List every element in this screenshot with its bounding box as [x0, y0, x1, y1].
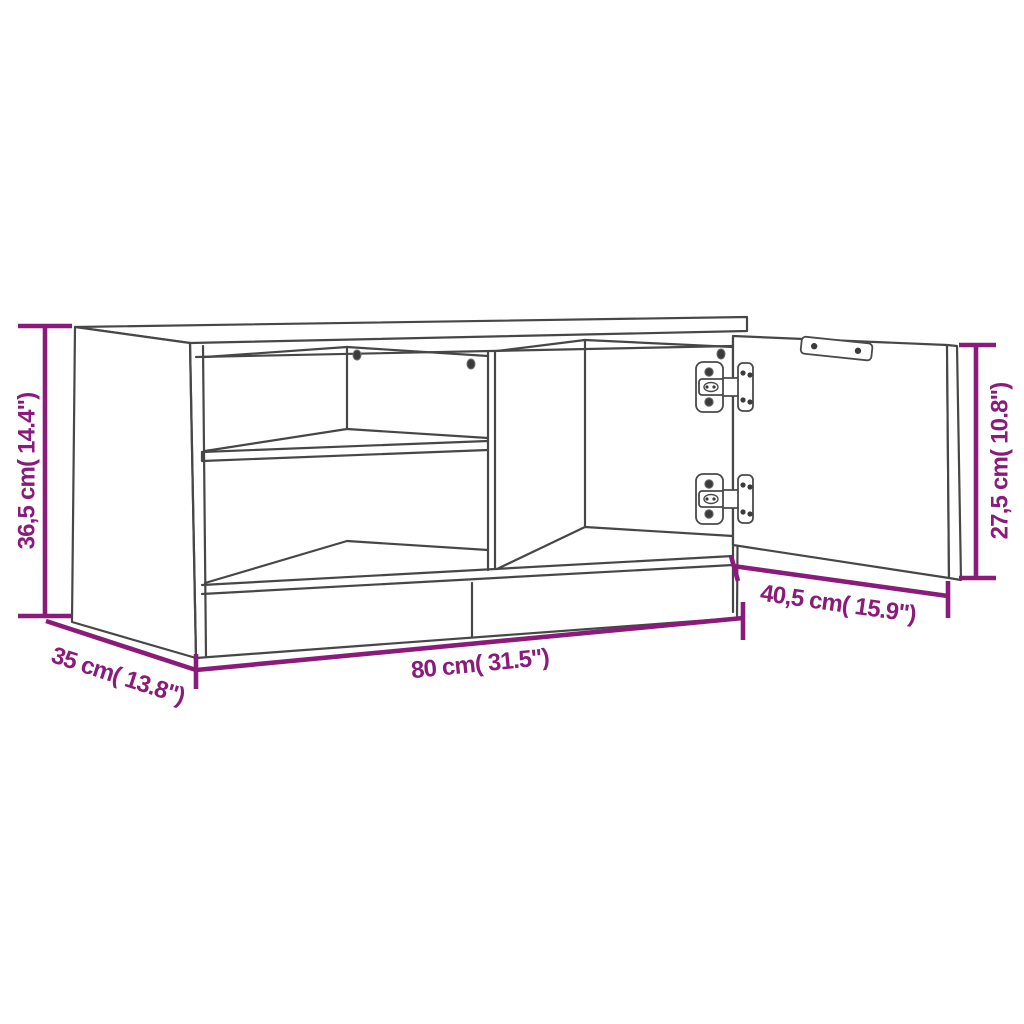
- cabinet-outline: [72, 317, 747, 658]
- furniture-dimension-diagram: 36,5 cm( 14.4") 35 cm( 13.8") 80 cm( 31.…: [0, 0, 1024, 1024]
- door-inner-face: [733, 336, 949, 578]
- left-side-panel: [72, 327, 196, 658]
- left-compartment: [202, 347, 488, 583]
- top-panel: [75, 317, 747, 343]
- hinge-icon: [696, 474, 753, 524]
- hinge-icon: [696, 362, 753, 412]
- screw-icon: [353, 350, 361, 360]
- middle-shelf: [202, 429, 488, 461]
- front-frame: [190, 339, 739, 658]
- diagram-canvas: 36,5 cm( 14.4") 35 cm( 13.8") 80 cm( 31.…: [0, 0, 1024, 1024]
- screw-icon: [467, 359, 475, 369]
- center-divider: [488, 351, 495, 570]
- door-height-dimension-label: 27,5 cm( 10.8"): [987, 383, 1014, 540]
- screw-icon: [717, 349, 725, 359]
- depth-dimension-label: 35 cm( 13.8"): [48, 642, 188, 710]
- door-edge-thickness: [947, 345, 961, 580]
- open-door: [696, 336, 961, 580]
- height-dimension-label: 36,5 cm( 14.4"): [14, 393, 41, 550]
